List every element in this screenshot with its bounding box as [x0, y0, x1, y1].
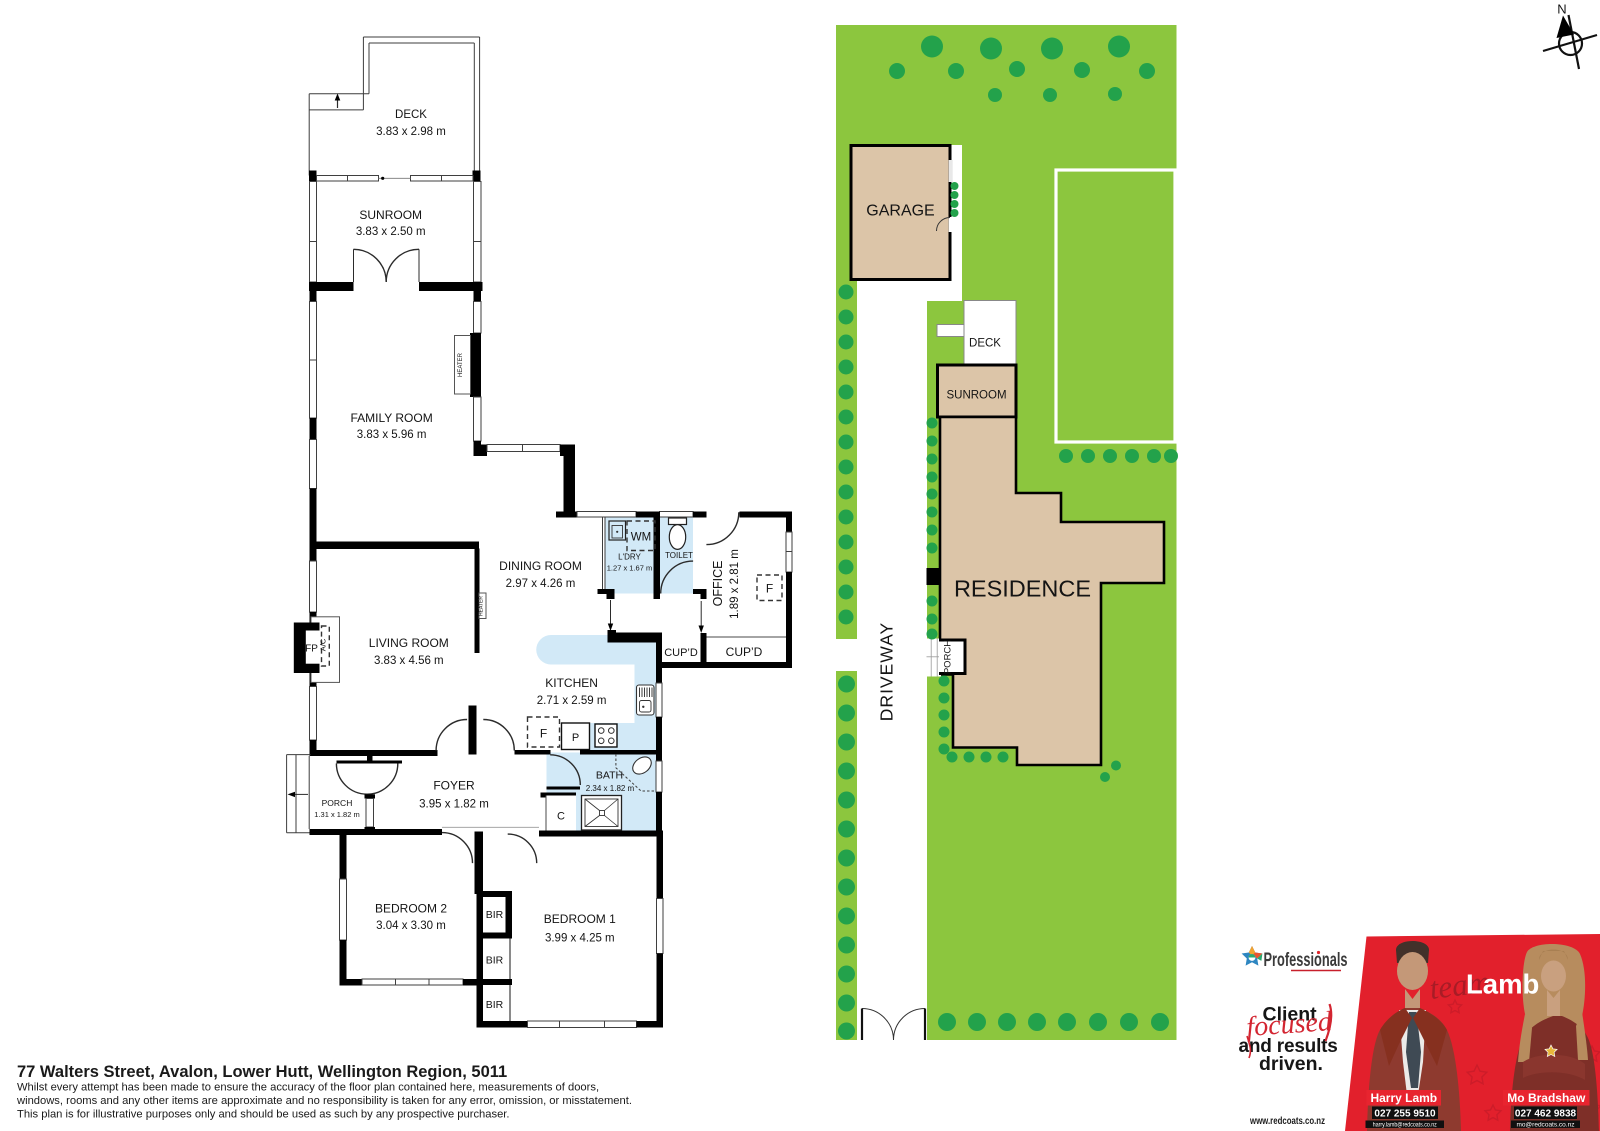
svg-text:BEDROOM 2: BEDROOM 2 — [375, 902, 447, 916]
svg-text:HEATER: HEATER — [458, 352, 464, 377]
svg-text:Whilst every attempt has been: Whilst every attempt has been made to en… — [17, 1082, 599, 1094]
svg-text:KITCHEN: KITCHEN — [545, 676, 598, 690]
svg-text:Professionals: Professionals — [1264, 950, 1348, 971]
svg-text:mo@redcoats.co.nz: mo@redcoats.co.nz — [1517, 1122, 1575, 1128]
svg-text:C: C — [557, 811, 565, 823]
svg-text:3.99 x 4.25 m: 3.99 x 4.25 m — [545, 933, 615, 945]
svg-text:77 Walters Street, Avalon, Low: 77 Walters Street, Avalon, Lower Hutt, W… — [17, 1063, 507, 1081]
svg-text:windows, rooms and any other i: windows, rooms and any other items are a… — [16, 1095, 632, 1107]
svg-text:3.83 x 2.50 m: 3.83 x 2.50 m — [356, 226, 426, 238]
svg-text:027 255 9510: 027 255 9510 — [1374, 1108, 1436, 1119]
svg-text:2.34 x 1.82 m: 2.34 x 1.82 m — [586, 784, 635, 793]
svg-text:CUP’D: CUP’D — [664, 647, 698, 659]
svg-text:DECK: DECK — [969, 338, 1001, 350]
svg-text:3.95 x 1.82 m: 3.95 x 1.82 m — [419, 799, 489, 811]
svg-text:TOILET: TOILET — [665, 551, 693, 560]
svg-text:This plan is for illustrative: This plan is for illustrative purposes o… — [17, 1109, 510, 1121]
svg-text:DINING ROOM: DINING ROOM — [499, 559, 582, 573]
svg-text:2.97 x 4.26 m: 2.97 x 4.26 m — [506, 578, 576, 590]
svg-text:Mo Bradshaw: Mo Bradshaw — [1507, 1091, 1586, 1105]
svg-text:FAMILY ROOM: FAMILY ROOM — [350, 411, 432, 425]
svg-text:BIR: BIR — [486, 909, 504, 921]
svg-text:LIVING ROOM: LIVING ROOM — [369, 636, 449, 650]
svg-text:FP: FP — [305, 644, 318, 655]
svg-text:OFFICE: OFFICE — [711, 560, 725, 606]
svg-text:1.27 x 1.67 m: 1.27 x 1.67 m — [607, 564, 652, 573]
svg-text:1.89 x 2.81 m: 1.89 x 2.81 m — [729, 549, 741, 619]
svg-text:DRIVEWAY: DRIVEWAY — [877, 622, 897, 721]
svg-text:CUP’D: CUP’D — [726, 645, 763, 659]
svg-text:P: P — [572, 732, 579, 744]
svg-text:027 462 9838: 027 462 9838 — [1515, 1108, 1577, 1119]
svg-text:A/C: A/C — [319, 638, 328, 651]
svg-text:BIR: BIR — [486, 999, 504, 1011]
svg-text:HEATER: HEATER — [479, 596, 485, 616]
svg-text:F: F — [766, 582, 773, 596]
svg-text:harry.lamb@redcoats.co.nz: harry.lamb@redcoats.co.nz — [1373, 1122, 1437, 1128]
svg-text:L'DRY: L'DRY — [618, 553, 641, 562]
svg-text:BEDROOM 1: BEDROOM 1 — [544, 912, 616, 926]
svg-text:driven.: driven. — [1259, 1053, 1323, 1075]
svg-text:2.71 x 2.59 m: 2.71 x 2.59 m — [537, 695, 607, 707]
svg-text:3.83 x 4.56 m: 3.83 x 4.56 m — [374, 655, 444, 667]
svg-text:FOYER: FOYER — [433, 779, 475, 793]
svg-text:www.redcoats.co.nz: www.redcoats.co.nz — [1249, 1116, 1325, 1127]
svg-text:3.83 x 5.96 m: 3.83 x 5.96 m — [357, 429, 427, 441]
svg-text:GARAGE: GARAGE — [866, 203, 934, 220]
svg-text:PORCH: PORCH — [322, 798, 353, 808]
svg-text:SUNROOM: SUNROOM — [946, 390, 1006, 402]
svg-text:F: F — [540, 727, 547, 741]
svg-text:3.83 x 2.98 m: 3.83 x 2.98 m — [376, 126, 446, 138]
svg-text:BIR: BIR — [486, 955, 504, 967]
svg-text:SUNROOM: SUNROOM — [359, 208, 422, 222]
svg-text:WM: WM — [631, 532, 651, 544]
svg-text:1.31 x 1.82 m: 1.31 x 1.82 m — [314, 810, 359, 819]
svg-text:DECK: DECK — [395, 109, 427, 121]
svg-text:Lamb: Lamb — [1466, 969, 1539, 1000]
svg-text:N: N — [1557, 2, 1566, 17]
svg-text:PORCH: PORCH — [943, 640, 954, 674]
svg-text:3.04 x 3.30 m: 3.04 x 3.30 m — [376, 920, 446, 932]
svg-text:RESIDENCE: RESIDENCE — [954, 576, 1091, 602]
svg-text:Harry Lamb: Harry Lamb — [1370, 1091, 1437, 1105]
